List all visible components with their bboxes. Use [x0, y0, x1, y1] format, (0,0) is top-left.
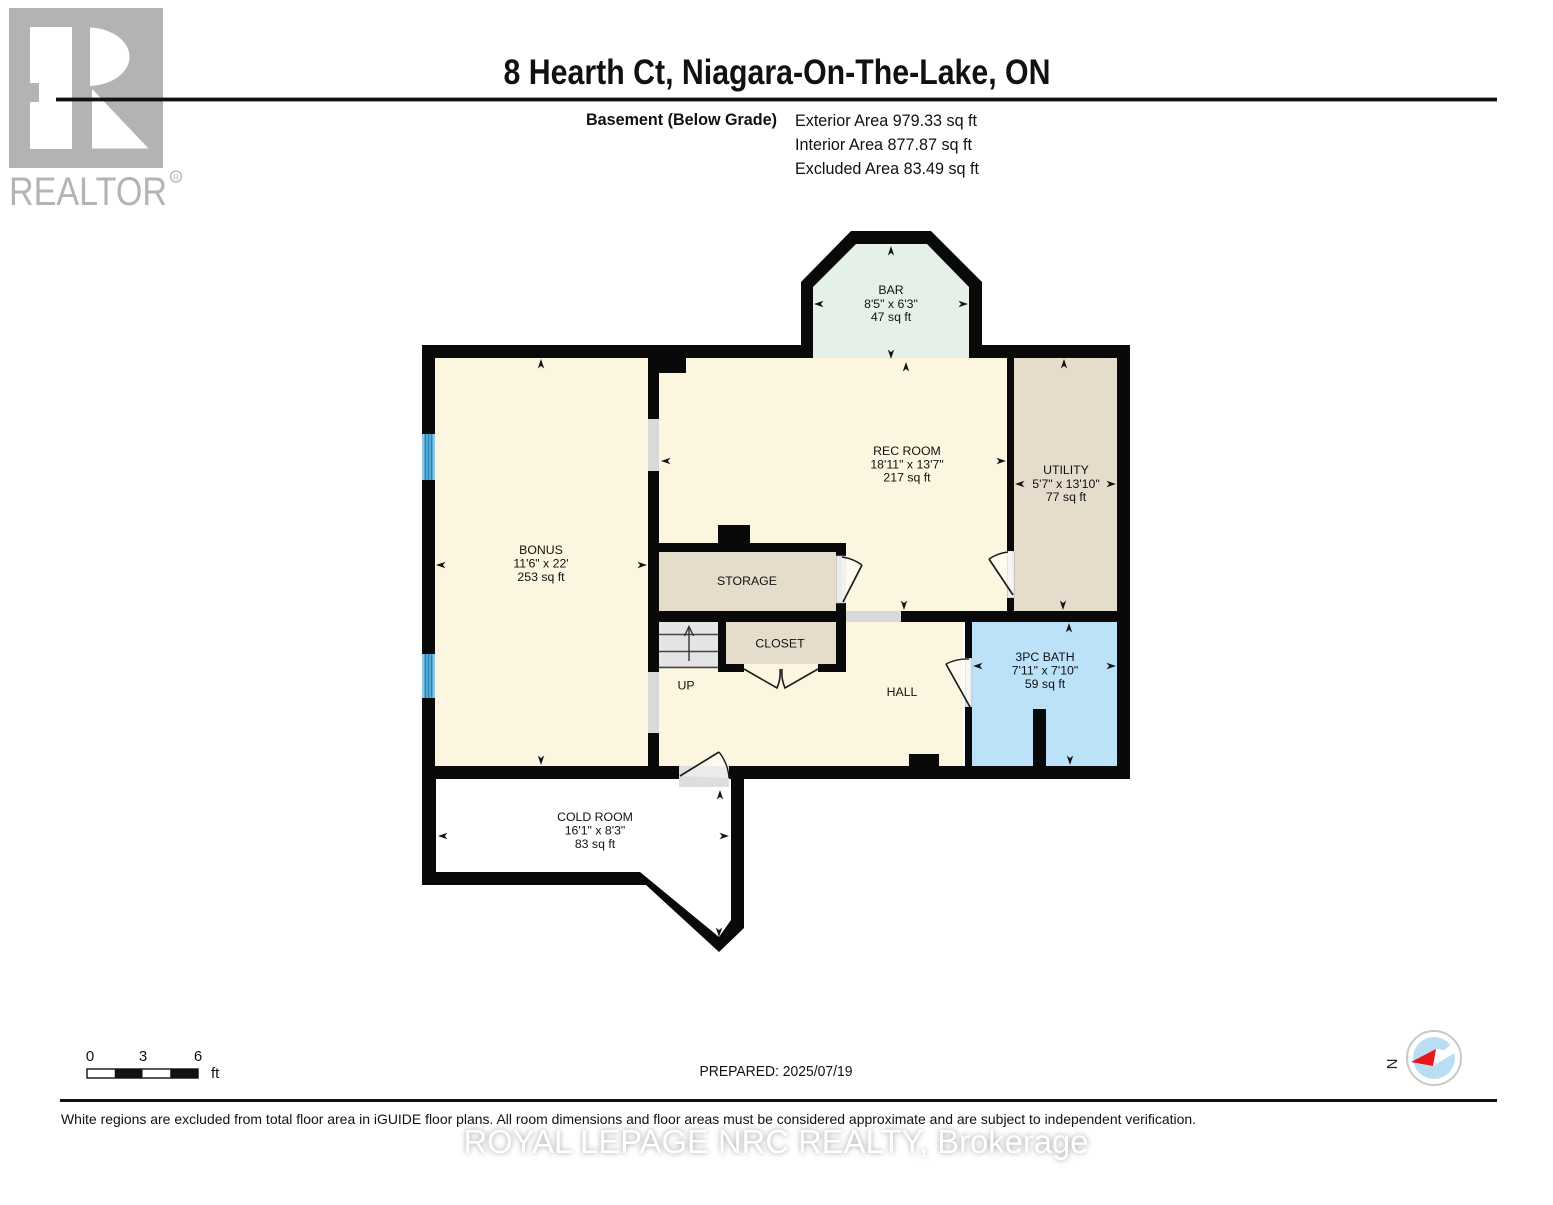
svg-text:5'7" x 13'10": 5'7" x 13'10" [1032, 477, 1099, 491]
svg-text:11'6" x 22': 11'6" x 22' [513, 557, 568, 571]
svg-text:77 sq ft: 77 sq ft [1046, 490, 1087, 504]
svg-text:3: 3 [139, 1048, 147, 1065]
svg-text:Exterior Area 979.33 sq ft: Exterior Area 979.33 sq ft [795, 111, 977, 130]
svg-text:PREPARED: 2025/07/19: PREPARED: 2025/07/19 [700, 1064, 853, 1080]
svg-text:BAR: BAR [878, 283, 903, 297]
svg-text:6: 6 [194, 1048, 202, 1065]
svg-text:UTILITY: UTILITY [1043, 463, 1089, 477]
svg-text:Excluded Area 83.49 sq ft: Excluded Area 83.49 sq ft [795, 159, 979, 178]
svg-text:Basement (Below Grade): Basement (Below Grade) [586, 110, 777, 129]
svg-text:N: N [1384, 1059, 1401, 1070]
svg-text:ROYAL LEPAGE NRC REALTY, Broke: ROYAL LEPAGE NRC REALTY, Brokerage [464, 1123, 1089, 1160]
svg-text:16'1" x 8'3": 16'1" x 8'3" [565, 824, 626, 838]
svg-text:UP: UP [677, 679, 694, 693]
svg-text:59 sq ft: 59 sq ft [1025, 677, 1066, 691]
svg-text:REC ROOM: REC ROOM [873, 444, 941, 458]
svg-text:COLD ROOM: COLD ROOM [557, 810, 633, 824]
svg-text:Interior Area 877.87 sq ft: Interior Area 877.87 sq ft [795, 135, 972, 154]
svg-text:REALTOR: REALTOR [9, 170, 167, 214]
svg-text:BONUS: BONUS [519, 543, 563, 557]
svg-text:HALL: HALL [887, 685, 918, 699]
svg-text:8 Hearth Ct, Niagara-On-The-La: 8 Hearth Ct, Niagara-On-The-Lake, ON [504, 53, 1051, 92]
svg-text:R: R [173, 173, 179, 182]
svg-text:253 sq ft: 253 sq ft [517, 570, 565, 584]
svg-text:47 sq ft: 47 sq ft [871, 310, 912, 324]
svg-text:CLOSET: CLOSET [755, 637, 805, 651]
svg-text:STORAGE: STORAGE [717, 574, 777, 588]
svg-text:217 sq ft: 217 sq ft [883, 471, 931, 485]
svg-text:83 sq ft: 83 sq ft [575, 837, 616, 851]
svg-text:ft: ft [211, 1065, 220, 1082]
svg-text:3PC BATH: 3PC BATH [1015, 650, 1074, 664]
svg-text:8'5" x 6'3": 8'5" x 6'3" [864, 297, 918, 311]
svg-text:18'11" x 13'7": 18'11" x 13'7" [870, 458, 943, 472]
svg-text:7'11" x 7'10": 7'11" x 7'10" [1012, 664, 1079, 678]
svg-text:0: 0 [86, 1048, 94, 1065]
